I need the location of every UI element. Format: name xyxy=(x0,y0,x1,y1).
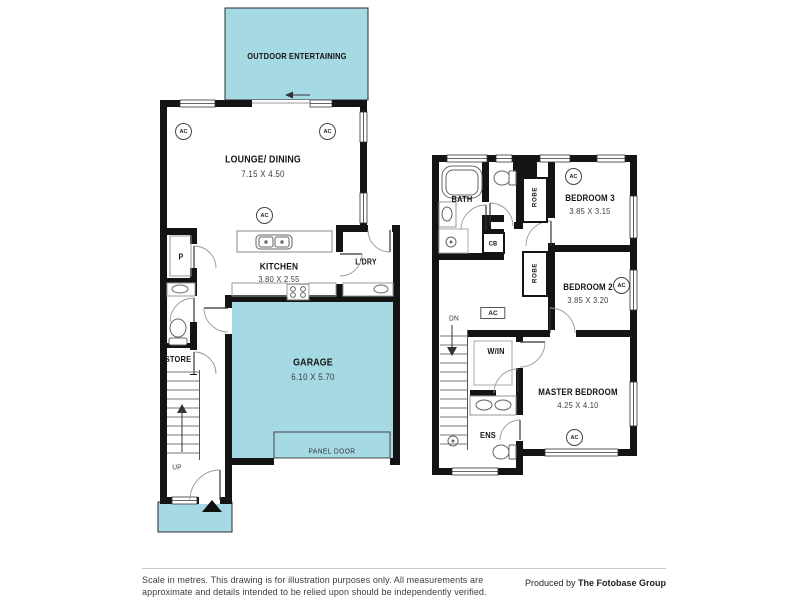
bedroom3-label: BEDROOM 3 xyxy=(565,193,615,203)
robe-bed2-label: ROBE xyxy=(532,263,539,283)
stairs-ground xyxy=(167,370,200,460)
ac-label: AC xyxy=(180,129,188,135)
stairs-upper xyxy=(440,325,468,450)
laundry-label: L'DRY xyxy=(355,258,376,267)
porch-area xyxy=(158,502,232,532)
producer-credit: Produced by The Fotobase Group xyxy=(525,578,666,588)
ac-unit: AC xyxy=(256,207,273,224)
ac-unit: AC xyxy=(566,429,583,446)
producer-prefix: Produced by xyxy=(525,578,578,588)
bedroom2-label: BEDROOM 2 xyxy=(563,282,613,292)
ac-unit: AC xyxy=(175,123,192,140)
bedroom2-dims: 3.85 X 3.20 xyxy=(567,295,608,305)
disclaimer: Scale in metres. This drawing is for ill… xyxy=(142,574,487,598)
stove xyxy=(287,284,309,300)
ac-unit-box: AC xyxy=(480,307,505,319)
store-label: STORE xyxy=(165,354,192,364)
garage-label: GARAGE xyxy=(293,358,333,369)
ac-label: AC xyxy=(570,174,578,180)
toilet xyxy=(170,319,186,337)
ac-label: AC xyxy=(618,283,626,289)
floorplan-drawing xyxy=(0,0,800,600)
bath-label: BATH xyxy=(452,194,473,204)
kitchen-dims: 3.80 X 2.55 xyxy=(258,274,299,284)
disclaimer-line1: Scale in metres. This drawing is for ill… xyxy=(142,575,483,585)
producer-brand: The Fotobase Group xyxy=(578,578,666,588)
cupboard-label: CB xyxy=(489,241,498,248)
ac-label: AC xyxy=(488,310,497,317)
floorplan-page: OUTDOOR ENTERTAINING LOUNGE/ DINING 7.15… xyxy=(0,0,800,600)
panel-door-label: PANEL DOOR xyxy=(309,447,356,456)
ac-unit: AC xyxy=(319,123,336,140)
lounge-dining-dims: 7.15 X 4.50 xyxy=(241,169,284,179)
bedroom3-dims: 3.85 X 3.15 xyxy=(569,206,610,216)
master-dims: 4.25 X 4.10 xyxy=(557,400,598,410)
footer: Scale in metres. This drawing is for ill… xyxy=(142,568,666,598)
outdoor-label: OUTDOOR ENTERTAINING xyxy=(247,51,346,61)
pantry-label: P xyxy=(179,253,184,262)
disclaimer-line2: approximate and details intended to be r… xyxy=(142,587,487,597)
toilet xyxy=(494,171,510,185)
lounge-dining-label: LOUNGE/ DINING xyxy=(225,155,301,166)
dn-label: DN xyxy=(449,314,459,323)
up-label: UP xyxy=(172,463,182,472)
walkin-label: W/IN xyxy=(487,346,504,356)
ac-unit: AC xyxy=(613,277,630,294)
garage-dims: 6.10 X 5.70 xyxy=(291,372,334,382)
shower xyxy=(439,229,468,253)
ac-label: AC xyxy=(571,435,579,441)
ac-label: AC xyxy=(261,213,269,219)
ensuite-label: ENS xyxy=(480,430,496,440)
ac-label: AC xyxy=(324,129,332,135)
master-label: MASTER BEDROOM xyxy=(538,387,617,397)
ac-unit: AC xyxy=(565,168,582,185)
kitchen-label: KITCHEN xyxy=(260,262,298,273)
toilet xyxy=(493,445,509,459)
robe-bed3-label: ROBE xyxy=(532,187,539,207)
